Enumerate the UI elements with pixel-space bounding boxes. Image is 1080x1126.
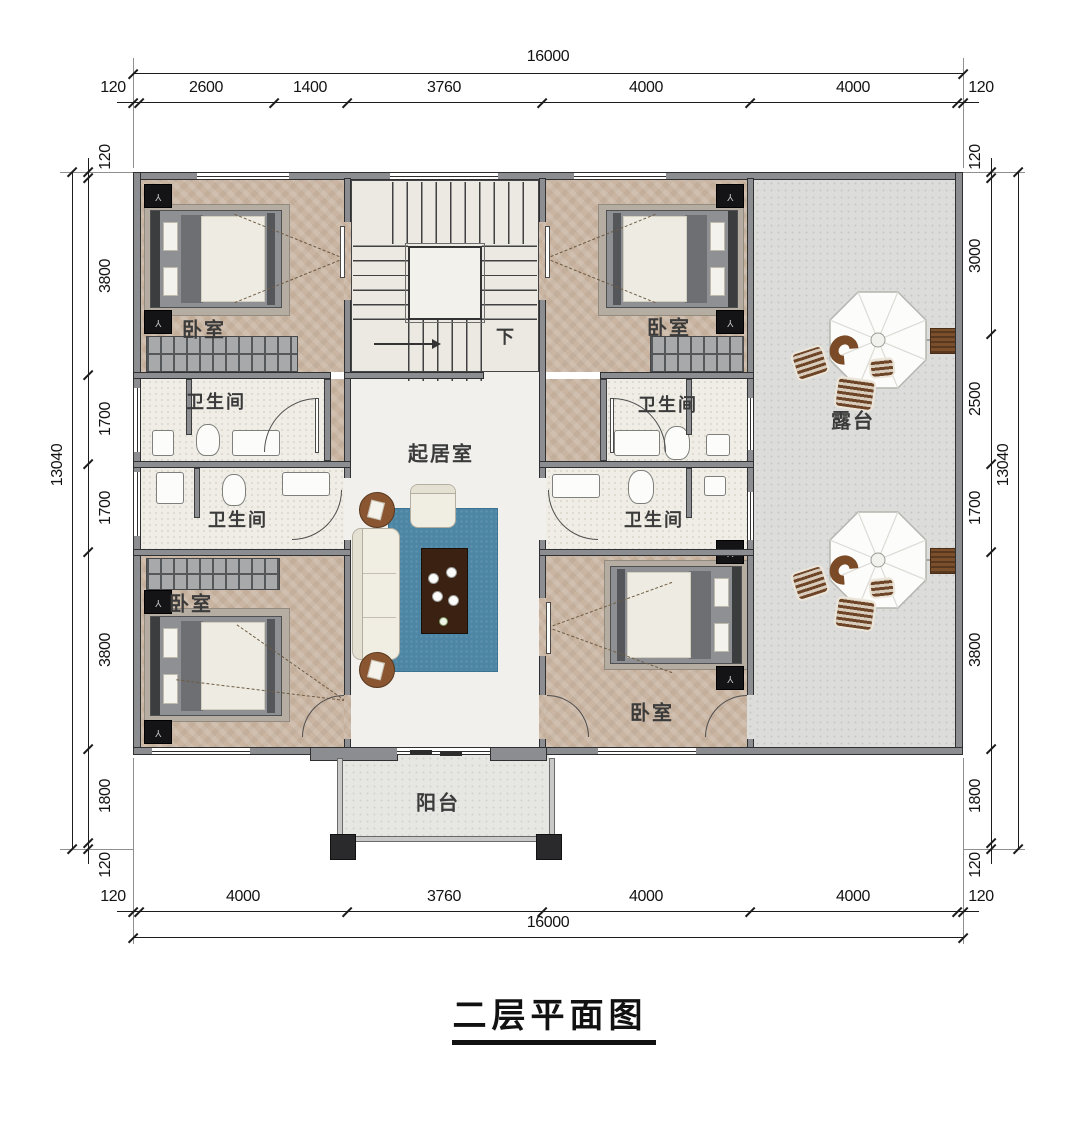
dim-label: 4000: [226, 888, 260, 906]
dim-label: 3000: [967, 239, 985, 273]
armchair: [410, 484, 456, 528]
dim-line-bottom-overall: [133, 937, 963, 938]
umbrella-side-table: [930, 328, 956, 354]
dim-label: 4000: [629, 888, 663, 906]
stair-treads: [482, 244, 537, 320]
door-opening: [344, 478, 351, 540]
dim-label: 1700: [967, 491, 985, 525]
balcony-column: [330, 834, 356, 860]
window: [133, 472, 141, 536]
wall: [955, 172, 963, 755]
dim-label: 1800: [97, 779, 115, 813]
pillow: [710, 222, 725, 252]
wall: [133, 461, 351, 468]
recess-floor: [546, 379, 600, 461]
plate: [432, 591, 443, 602]
duvet: [181, 215, 203, 303]
side-table: [359, 492, 395, 528]
dim-label: 16000: [527, 914, 570, 932]
door-opening: [539, 598, 546, 656]
nightstand: Y: [144, 310, 172, 334]
toilet: [196, 424, 220, 456]
dim-label: 4000: [836, 888, 870, 906]
blanket: [201, 622, 265, 710]
foot-bench: [617, 569, 625, 661]
dim-label: 1800: [967, 779, 985, 813]
duvet: [181, 621, 203, 711]
door-opening: [344, 695, 351, 739]
bathroom-sink: [704, 476, 726, 496]
window: [133, 388, 141, 452]
shower: [156, 472, 184, 504]
dim-label: 120: [97, 144, 115, 170]
room-label-bedroom-bl: 卧室: [169, 588, 213, 617]
plate: [448, 595, 459, 606]
sofa-back: [353, 529, 363, 659]
book: [367, 660, 385, 681]
foot-bench: [267, 619, 275, 713]
window: [390, 172, 498, 180]
dim-label: 13040: [49, 444, 67, 487]
wall: [600, 372, 754, 379]
dim-line-bottom-segments: [117, 911, 979, 912]
dim-label: 3760: [427, 79, 461, 97]
wall: [133, 549, 351, 556]
bathroom-sink: [152, 430, 174, 456]
side-table: [359, 652, 395, 688]
book: [367, 500, 385, 521]
plan-title: 二层平面图: [340, 988, 760, 1037]
nightstand: Y: [716, 310, 744, 334]
dim-label: 120: [100, 79, 126, 97]
pillow: [714, 578, 729, 608]
fan-icon: Y: [155, 191, 162, 202]
dim-line-top-segments: [117, 102, 979, 103]
toilet: [628, 470, 654, 504]
cushion-seam: [363, 617, 396, 618]
cushion-seam: [363, 573, 396, 574]
fan-icon: Y: [727, 191, 734, 202]
room-label-bath-tl: 卫生间: [186, 388, 246, 414]
floor-plan-sheet: 16000 120 2600 1400 3760 4000 4000 120 1…: [0, 0, 1080, 1126]
headboard: [732, 567, 741, 663]
blanket: [627, 572, 691, 658]
door-opening: [539, 695, 546, 739]
door-leaf: [546, 602, 551, 654]
balcony-railing: [549, 758, 555, 842]
door-opening: [344, 222, 351, 300]
room-label-bedroom-tl: 卧室: [182, 314, 226, 343]
pillow: [163, 628, 178, 658]
window: [574, 172, 666, 180]
bed: [610, 566, 742, 664]
dim-label: 3800: [967, 633, 985, 667]
dim-label: 120: [968, 79, 994, 97]
dim-label: 1400: [293, 79, 327, 97]
blanket: [623, 216, 687, 302]
room-label-bedroom-br: 卧室: [630, 697, 674, 726]
stair-direction-arrow: [374, 343, 432, 345]
dim-label: 120: [97, 852, 115, 878]
stair-treads: [392, 182, 537, 244]
dim-label: 4000: [629, 79, 663, 97]
wall: [310, 747, 398, 761]
dim-label: 4000: [836, 79, 870, 97]
recess-floor: [331, 379, 344, 461]
wall: [600, 379, 607, 461]
wardrobe: [650, 336, 744, 372]
room-label-bath-tr: 卫生间: [638, 391, 698, 417]
dim-label: 3800: [97, 633, 115, 667]
fan-icon: Y: [155, 597, 162, 608]
room-label-bath-bl: 卫生间: [208, 506, 268, 532]
wall: [194, 468, 200, 518]
plate: [446, 567, 457, 578]
door-leaf: [340, 226, 345, 278]
nightstand: Y: [144, 590, 172, 614]
dim-label: 120: [967, 144, 985, 170]
stair-entry-opening: [484, 372, 539, 379]
dim-label: 1700: [97, 491, 115, 525]
wall: [133, 372, 331, 379]
dim-label: 120: [100, 888, 126, 906]
wall: [686, 468, 692, 518]
wall: [324, 379, 331, 461]
door-leaf: [315, 398, 319, 453]
door-opening: [539, 478, 546, 540]
window: [152, 747, 250, 755]
terrace-floor: [754, 180, 955, 747]
dim-line-left-segments: [88, 158, 89, 864]
bed: [150, 616, 282, 716]
dim-line-right-segments: [991, 158, 992, 864]
blanket: [201, 216, 265, 302]
dim-label: 13040: [995, 444, 1013, 487]
plate: [428, 573, 439, 584]
armchair-back: [411, 485, 455, 494]
wardrobe: [146, 558, 280, 590]
dim-label: 3800: [97, 259, 115, 293]
umbrella-side-table: [930, 548, 956, 574]
stair-arrow-head: [432, 339, 441, 349]
stair-treads: [353, 244, 408, 320]
dim-line-left-overall: [72, 172, 73, 849]
window: [197, 172, 289, 180]
window: [747, 398, 754, 450]
balcony-railing: [337, 836, 555, 842]
room-label-living: 起居室: [408, 438, 474, 467]
room-label-bath-br: 卫生间: [624, 506, 684, 532]
dim-line-top-overall: [133, 73, 963, 74]
dim-line-right-overall: [1018, 172, 1019, 849]
window: [598, 747, 696, 755]
wall: [133, 747, 963, 755]
pillow: [714, 623, 729, 653]
duvet: [685, 215, 707, 303]
stairs-down-label: 下: [496, 323, 516, 349]
wall: [490, 747, 547, 761]
fan-icon: Y: [155, 317, 162, 328]
window: [747, 492, 754, 540]
headboard: [151, 617, 160, 715]
wall: [539, 549, 754, 556]
room-label-terrace: 露台: [831, 405, 875, 434]
coffee-table: [421, 548, 468, 634]
door-leaf: [545, 226, 550, 278]
nightstand: Y: [144, 184, 172, 208]
patio-chair: [868, 577, 896, 600]
nightstand: Y: [716, 184, 744, 208]
sofa: [352, 528, 400, 660]
patio-chair: [868, 357, 896, 380]
stair-void: [408, 246, 482, 320]
dim-label: 120: [967, 852, 985, 878]
balcony-column: [536, 834, 562, 860]
dim-label: 120: [968, 888, 994, 906]
dim-label: 1700: [97, 402, 115, 436]
title-underline: [452, 1040, 656, 1045]
nightstand: Y: [716, 666, 744, 690]
flower-vase: [439, 617, 448, 626]
bathroom-sink: [706, 434, 730, 456]
fan-icon: Y: [727, 317, 734, 328]
door-opening: [747, 695, 754, 739]
extension-line: [963, 758, 964, 944]
fan-icon: Y: [727, 673, 734, 684]
dim-label: 2600: [189, 79, 223, 97]
toilet: [222, 474, 246, 506]
duvet: [689, 571, 711, 659]
sliding-door-leaf: [440, 752, 462, 756]
dim-label: 16000: [527, 48, 570, 66]
sliding-door-leaf: [410, 750, 432, 754]
headboard: [151, 211, 160, 307]
headboard: [728, 211, 737, 307]
room-label-bedroom-tr: 卧室: [647, 312, 691, 341]
dim-label: 3760: [427, 888, 461, 906]
room-label-balcony: 阳台: [416, 787, 460, 816]
dim-label: 2500: [967, 382, 985, 416]
wall: [344, 372, 484, 379]
nightstand: Y: [144, 720, 172, 744]
pillow: [163, 222, 178, 252]
pillow: [163, 267, 178, 297]
door-leaf: [610, 398, 614, 453]
wall: [539, 461, 754, 468]
balcony-railing: [337, 758, 343, 842]
patio-chair: [833, 595, 877, 632]
fan-icon: Y: [155, 727, 162, 738]
pillow: [710, 267, 725, 297]
